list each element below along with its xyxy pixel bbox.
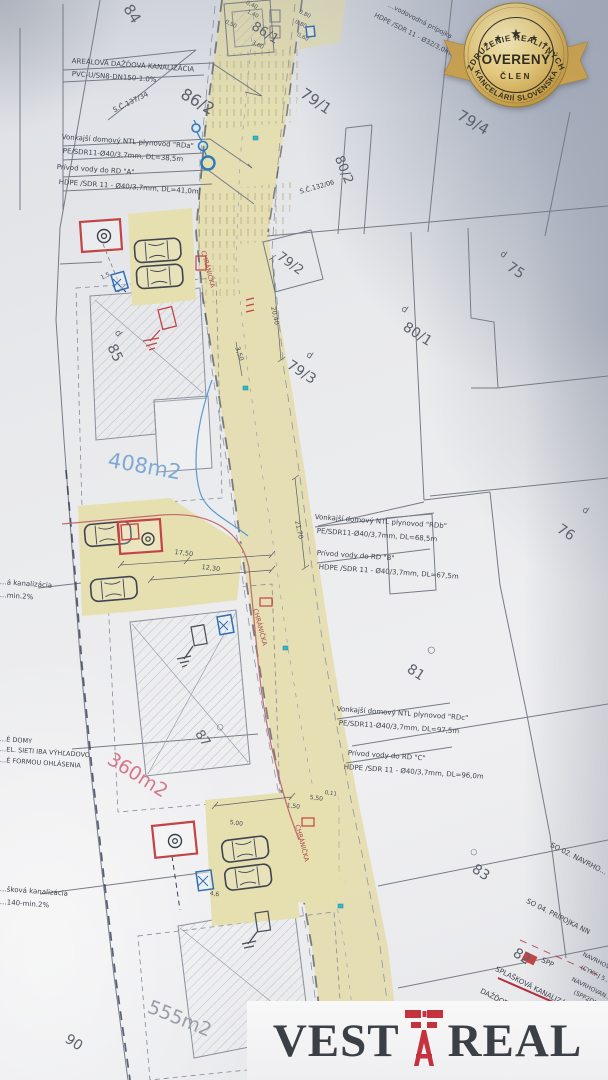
car-icon <box>134 238 181 263</box>
agency-logo: VEST REAL <box>247 1001 608 1080</box>
verified-badge: ZDRUŽENIE REALITNÝCH KANCELÁRIÍ SLOVENSK… <box>420 0 608 118</box>
dim-17-50: 17,50 <box>174 549 193 558</box>
car-icon <box>221 835 269 862</box>
site-plan-photo: 8486/186/279/179/480/279/275d80/1d79/3d8… <box>0 0 608 1080</box>
car-icon <box>136 264 183 289</box>
svg-text:★: ★ <box>543 41 548 48</box>
logo-text-right: REAL <box>448 1014 583 1068</box>
car-icon <box>90 576 138 602</box>
dashed-connector <box>172 856 180 910</box>
dim-4-6: 4,6 <box>209 891 219 898</box>
svg-text:★: ★ <box>494 34 502 44</box>
svg-text:★: ★ <box>510 27 522 42</box>
logo-text-left: VEST <box>273 1014 400 1068</box>
transformer-box-3 <box>152 822 197 858</box>
plan-drawing <box>0 0 608 1080</box>
badge-title: OVERENÝ <box>482 52 551 67</box>
svg-text:★: ★ <box>483 41 488 48</box>
edge-label-domy: …É DOMY <box>0 736 32 745</box>
badge-subtitle: ČLEN <box>500 72 532 81</box>
svg-text:★: ★ <box>530 34 538 44</box>
derrick-icon <box>402 1008 446 1068</box>
car-icon <box>224 863 272 890</box>
dim-12-30: 12,30 <box>201 564 220 573</box>
